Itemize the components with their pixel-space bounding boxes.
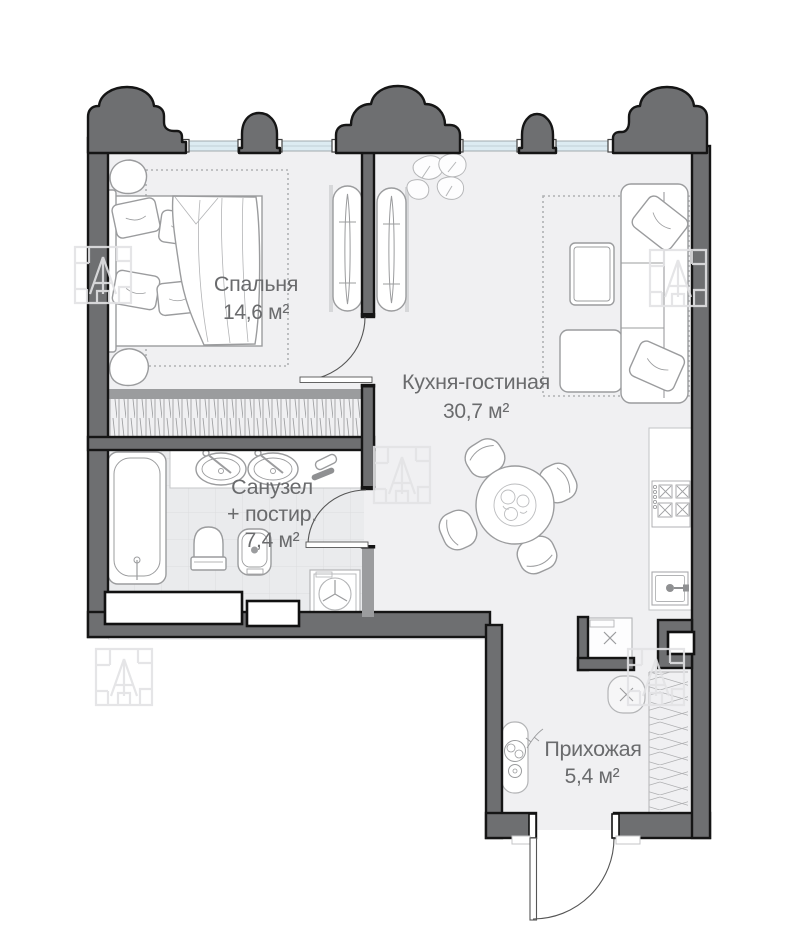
door-swing-arc: [533, 838, 614, 919]
niche-2: [247, 601, 299, 626]
hallway-label: Прихожая: [544, 737, 641, 761]
wall-bath-right: [362, 385, 374, 489]
bathtub: [108, 452, 166, 584]
hallway-area: 5,4 м²: [565, 765, 620, 788]
threshold: [512, 836, 530, 844]
cabinet-left: [333, 186, 362, 311]
pilaster-left: [88, 87, 186, 153]
coffee-table: [570, 243, 614, 305]
door-jamb: [529, 814, 536, 838]
bedroom-label: Спальня: [214, 272, 298, 296]
appliance-x: [588, 618, 632, 658]
pilaster-right: [613, 87, 707, 153]
bedroom-closet: [108, 389, 362, 437]
living-area: 30,7 м²: [443, 400, 509, 423]
kitchen-sink-icon: [652, 572, 689, 605]
toilet-icon: [191, 527, 226, 570]
floorplan-svg: Спальня 14,6 м² Кухня-гостиная 30,7 м² С…: [0, 0, 800, 943]
threshold: [616, 836, 640, 844]
wall-left: [88, 138, 108, 637]
bathroom-label-2: + постир.: [227, 502, 317, 526]
bathroom-area: 7,4 м²: [245, 529, 300, 552]
wall-bath-top: [88, 437, 374, 450]
bathroom-label: Санузел: [231, 475, 313, 499]
wall-appliance-bottom: [578, 658, 634, 670]
floor-plan: Спальня 14,6 м² Кухня-гостиная 30,7 м² С…: [0, 0, 800, 943]
cabinet-right: [377, 188, 406, 311]
nightstand-top: [110, 160, 146, 194]
wall-partition-bedroom: [362, 150, 374, 317]
bedroom-area: 14,6 м²: [223, 301, 289, 324]
stove-icon: [652, 481, 690, 527]
dining-table: [476, 466, 554, 544]
closet-hanger-hatch: [108, 399, 362, 437]
door-leaf: [530, 838, 537, 920]
pilaster-arch-2: [519, 114, 556, 153]
niche-1: [105, 592, 242, 624]
sofa-chaise: [560, 330, 622, 392]
door-jamb: [612, 814, 619, 838]
facade-pilasters: [88, 86, 707, 153]
niche-3: [668, 632, 694, 654]
logo-watermark: [96, 649, 152, 705]
nightstand-bottom: [110, 349, 149, 386]
pilaster-center: [336, 86, 460, 153]
wall-bath-stub: [362, 547, 374, 617]
washing-machine-icon: [310, 570, 360, 617]
pilaster-arch-1: [239, 113, 280, 153]
wall-hall-left: [486, 625, 502, 838]
living-label: Кухня-гостиная: [402, 370, 550, 394]
